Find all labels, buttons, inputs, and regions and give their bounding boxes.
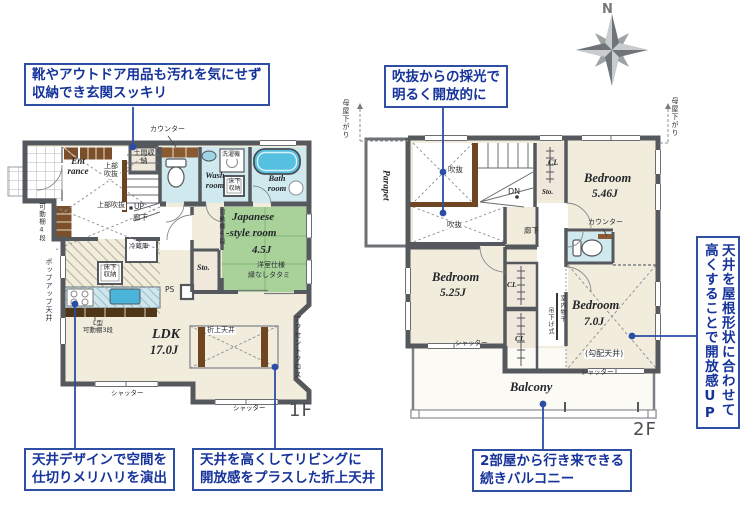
callout-void-light: 吹抜からの採光で 明るく開放的に	[384, 65, 508, 108]
callout-sloped-ceiling: 天井を屋根形状に合わせて 高くすることで開放感UP	[696, 236, 740, 429]
japanese-room-size: 4.5J	[252, 244, 271, 256]
upper-void-label-b: 上部吹抜	[96, 202, 126, 210]
shutter-label-2f-b: シャッター	[581, 369, 614, 376]
down-label: DN	[508, 188, 520, 197]
drying-label-1: 室内物干	[559, 295, 565, 323]
bedroom3-size-label: 7.0J	[584, 316, 604, 329]
shelf4-left-label: 可動棚4段	[38, 203, 45, 242]
bedroom2-label: Bedroom	[432, 270, 479, 284]
kitchen-cabinet	[65, 308, 157, 317]
moya-sagari-label-right: 母屋下がり	[671, 97, 678, 137]
counter-label-2f: カウンター	[588, 219, 623, 227]
pipe-space-label: PS	[165, 286, 174, 294]
parapet-label: Parapet	[380, 170, 391, 201]
approach-tiles	[8, 167, 25, 196]
callout-balcony-link: 2部屋から行き来できる 続きバルコニー	[472, 449, 632, 492]
popup-ceiling-label: ポップアップ天井	[45, 258, 52, 322]
callout-ceiling-design: 天井デザインで空間を 仕切りメリハリを演出	[24, 448, 175, 491]
bath-room-label: Bath room	[260, 174, 294, 193]
accent-cloth-label: アクセントクロス	[294, 315, 301, 379]
compass-north-label: N	[602, 3, 613, 18]
coffered-ceiling-label: 折上天井	[206, 327, 236, 335]
toilet-counter	[161, 148, 198, 158]
movable-shelf-left	[57, 206, 72, 237]
shutter-label-2f-a: シャッター	[455, 340, 488, 347]
porch-tiles	[25, 147, 62, 199]
ldk-size-label: 17.0J	[150, 343, 178, 357]
callout-entrance-storage: 靴やアウトドア用品も汚れを気にせず 収納でき玄関スッキリ	[24, 63, 270, 106]
up-label: UP	[134, 203, 144, 211]
bedroom2-size-label: 5.25J	[440, 287, 466, 300]
callout-coffered-ceiling: 天井を高くしてリビングに 開放感をプラスした折上天井	[192, 448, 383, 491]
sloped-ceiling-label: (勾配天井)	[584, 350, 624, 359]
washer-label: 洗濯機	[221, 152, 241, 159]
bedroom1-size-label: 5.46J	[592, 188, 618, 201]
storage-label-1f: Sto.	[197, 264, 210, 273]
shelf4-right-label: 可動棚4段	[218, 209, 224, 245]
japanese-room-label-1: Japanese	[232, 211, 274, 223]
refrigerator-label: 冷蔵庫	[129, 243, 149, 250]
l-shelf-label: L型可動棚3段	[76, 320, 120, 335]
doma-storage-label: 土間収納	[133, 150, 155, 166]
floor2-label: 2F	[633, 420, 657, 440]
closet-bottom-label: CL	[515, 335, 525, 343]
closet-top-label: CL	[548, 159, 558, 168]
floor-plan-2f	[357, 103, 671, 418]
hallway-label-1f: 廊下	[133, 214, 148, 222]
wash-basin-icon	[202, 151, 216, 161]
closet-mid-label: CL	[507, 281, 517, 289]
toilet-icon-1f	[166, 159, 186, 187]
bedroom3-label: Bedroom	[572, 298, 619, 312]
compass-icon	[576, 14, 648, 86]
ldk-label: LDK	[152, 327, 180, 343]
upper-void-label-a: 上部吹抜	[102, 163, 120, 179]
storage-label-2f: Sto.	[542, 189, 553, 197]
void-label-b: 吹抜	[446, 221, 463, 229]
floor1-label: 1F	[289, 401, 313, 421]
japanese-room-note-1: 洋室仕様	[257, 262, 285, 270]
balcony-label: Balcony	[510, 380, 552, 394]
void-trim-2	[410, 202, 478, 207]
japanese-room-note-2: 縁なしタタミ	[248, 272, 290, 280]
floorplan-canvas: Ent rance 土間収納 カウンター 上部吹抜 上部吹抜 UP 廊下 可動棚…	[0, 0, 740, 507]
drying-label-2: 吊下げ式	[547, 307, 553, 335]
void-trim-1	[472, 143, 478, 205]
bedroom1-label: Bedroom	[584, 171, 631, 185]
underfloor-storage-label-a: 床下収納	[227, 179, 242, 192]
shutter-label-1f-b: シャッター	[233, 405, 266, 412]
counter-label-1f: カウンター	[150, 126, 185, 134]
moya-sagari-label-left: 母屋下がり	[342, 99, 349, 139]
void-label-a: 吹抜	[447, 166, 464, 174]
sink-icon	[110, 289, 140, 304]
underfloor-storage-label-b: 床下収納	[102, 264, 118, 279]
shutter-label-1f-a: シャッター	[111, 390, 144, 397]
entrance-label: Ent rance	[62, 156, 94, 176]
japanese-room-label-2: -style room	[226, 227, 276, 239]
hallway-label-2f: 廊下	[524, 227, 539, 235]
